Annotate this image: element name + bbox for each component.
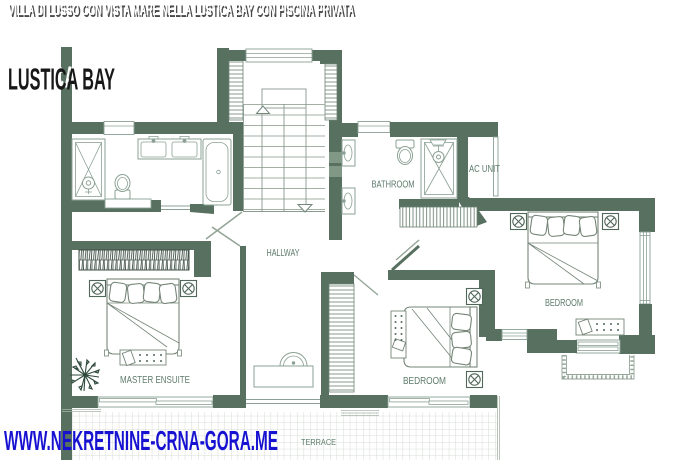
- svg-text:BATHROOM: BATHROOM: [372, 180, 415, 191]
- svg-text:VILLA DI LUSSO CON VISTA MARE: VILLA DI LUSSO CON VISTA MARE NELLA LUST…: [8, 1, 354, 19]
- svg-text:TERRACE: TERRACE: [301, 437, 336, 447]
- svg-text:BEDROOM: BEDROOM: [545, 298, 583, 309]
- svg-text:LUSTICA BAY: LUSTICA BAY: [8, 62, 115, 97]
- svg-text:AC UNIT: AC UNIT: [469, 164, 500, 175]
- svg-text:WWW.NEKRETNINE-CRNA-GORA.ME: WWW.NEKRETNINE-CRNA-GORA.ME: [4, 425, 278, 456]
- svg-text:HALLWAY: HALLWAY: [267, 248, 300, 259]
- svg-text:MASTER ENSUITE: MASTER ENSUITE: [120, 375, 190, 386]
- svg-text:BEDROOM: BEDROOM: [403, 376, 446, 387]
